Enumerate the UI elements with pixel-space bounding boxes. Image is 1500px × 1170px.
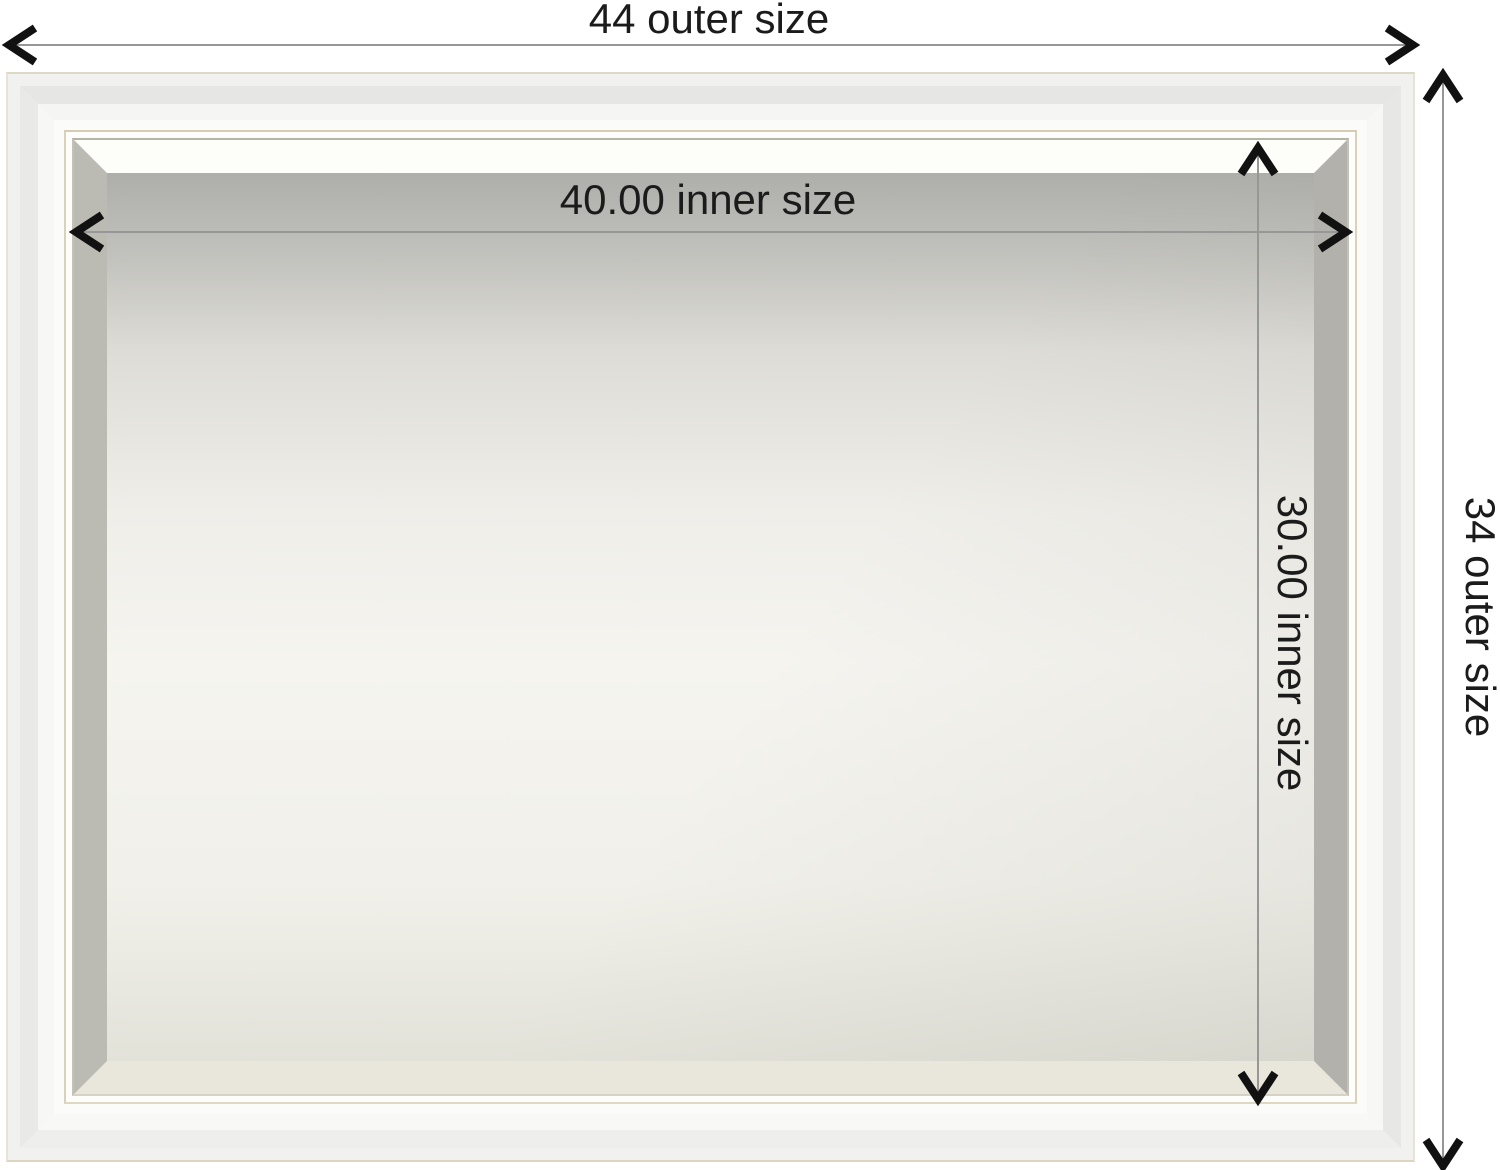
outer-width-label: 44 outer size <box>589 0 829 41</box>
frame-gold-pinstripe <box>64 130 1357 1104</box>
frame-lip-outer <box>54 120 1367 1114</box>
inner-height-label: 30.00 inner size <box>1270 495 1314 792</box>
mirror-dimension-diagram: 44 outer size 34 outer size 40.00 inner … <box>0 0 1500 1170</box>
mirror-glass <box>107 173 1314 1061</box>
outer-height-label: 34 outer size <box>1458 497 1500 737</box>
frame-inner-edge <box>72 138 1349 1096</box>
frame-lip-inner <box>66 132 1355 1102</box>
inner-width-label: 40.00 inner size <box>560 178 857 222</box>
mirror-bevel <box>74 140 1347 1094</box>
